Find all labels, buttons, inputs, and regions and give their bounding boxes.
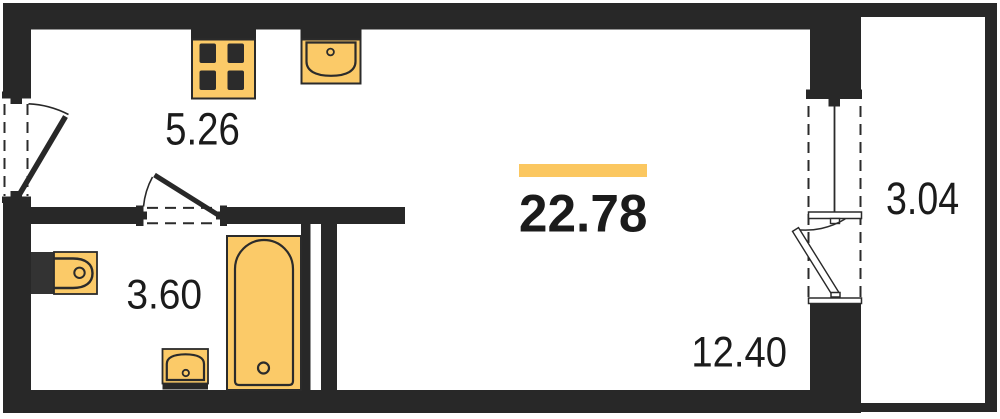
svg-text:5.26: 5.26 [165, 103, 240, 154]
svg-text:12.40: 12.40 [691, 329, 787, 376]
svg-text:3.04: 3.04 [886, 173, 959, 224]
svg-text:22.78: 22.78 [519, 185, 648, 244]
svg-text:3.60: 3.60 [126, 271, 202, 317]
